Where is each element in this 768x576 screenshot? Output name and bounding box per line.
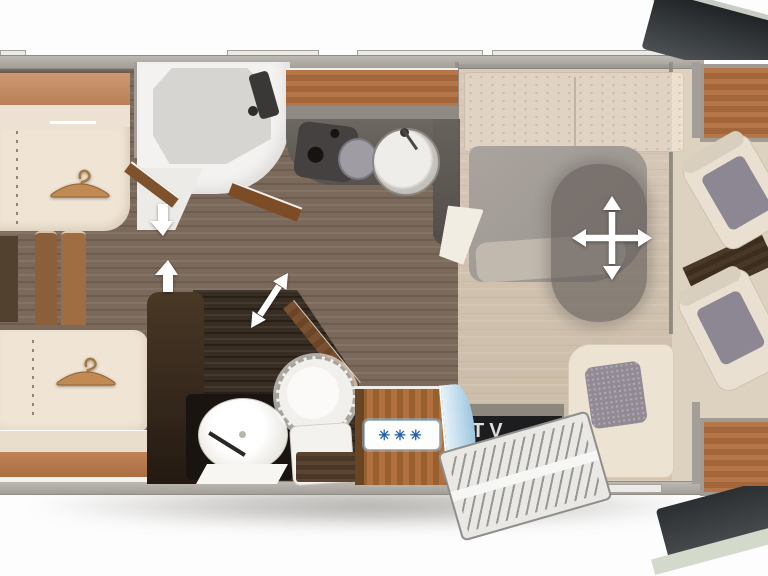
- shower-drain: [248, 106, 258, 116]
- step-cabinet-2: [61, 231, 86, 325]
- exterior-mirror-top: [616, 0, 768, 60]
- snowflake-asterisk-icon: ✳✳✳: [378, 427, 425, 444]
- rear-bed-shelf: [0, 105, 130, 127]
- rear-wardrobe-seam: [16, 131, 18, 225]
- baseboard: [0, 477, 160, 482]
- rear-bed-headboard: [0, 73, 130, 106]
- bench-cushion: [584, 360, 648, 429]
- floorplan-canvas: ✳✳✳ TV: [0, 0, 768, 576]
- sink-faucet-arm: [402, 129, 418, 150]
- hob-burner-large: [307, 146, 325, 164]
- kitchen-overhead-cabinet: [286, 68, 458, 110]
- front-wardrobe-panel: [0, 330, 148, 432]
- fridge-cabinet-edge: [355, 389, 364, 485]
- front-wardrobe-seam: [32, 340, 34, 420]
- shelf-highlight: [50, 121, 96, 124]
- kitchen-sink[interactable]: [372, 128, 440, 196]
- step-cabinet-1: [35, 231, 57, 325]
- rear-wardrobe-panel: [0, 127, 130, 231]
- cab-wall-top: [692, 62, 700, 138]
- freezer-rating-badge: ✳✳✳: [364, 420, 440, 450]
- basin-drain: [239, 431, 246, 438]
- step-cabinet-back: [0, 236, 18, 322]
- dashboard-bottom: [700, 418, 768, 496]
- exterior-mirror-bottom: [640, 486, 768, 576]
- basin-tray: [196, 464, 288, 484]
- hob-burner-small: [330, 128, 340, 138]
- cab-wall-bottom: [692, 402, 700, 484]
- bathroom-step: [296, 452, 356, 482]
- toilet-seat: [287, 367, 339, 419]
